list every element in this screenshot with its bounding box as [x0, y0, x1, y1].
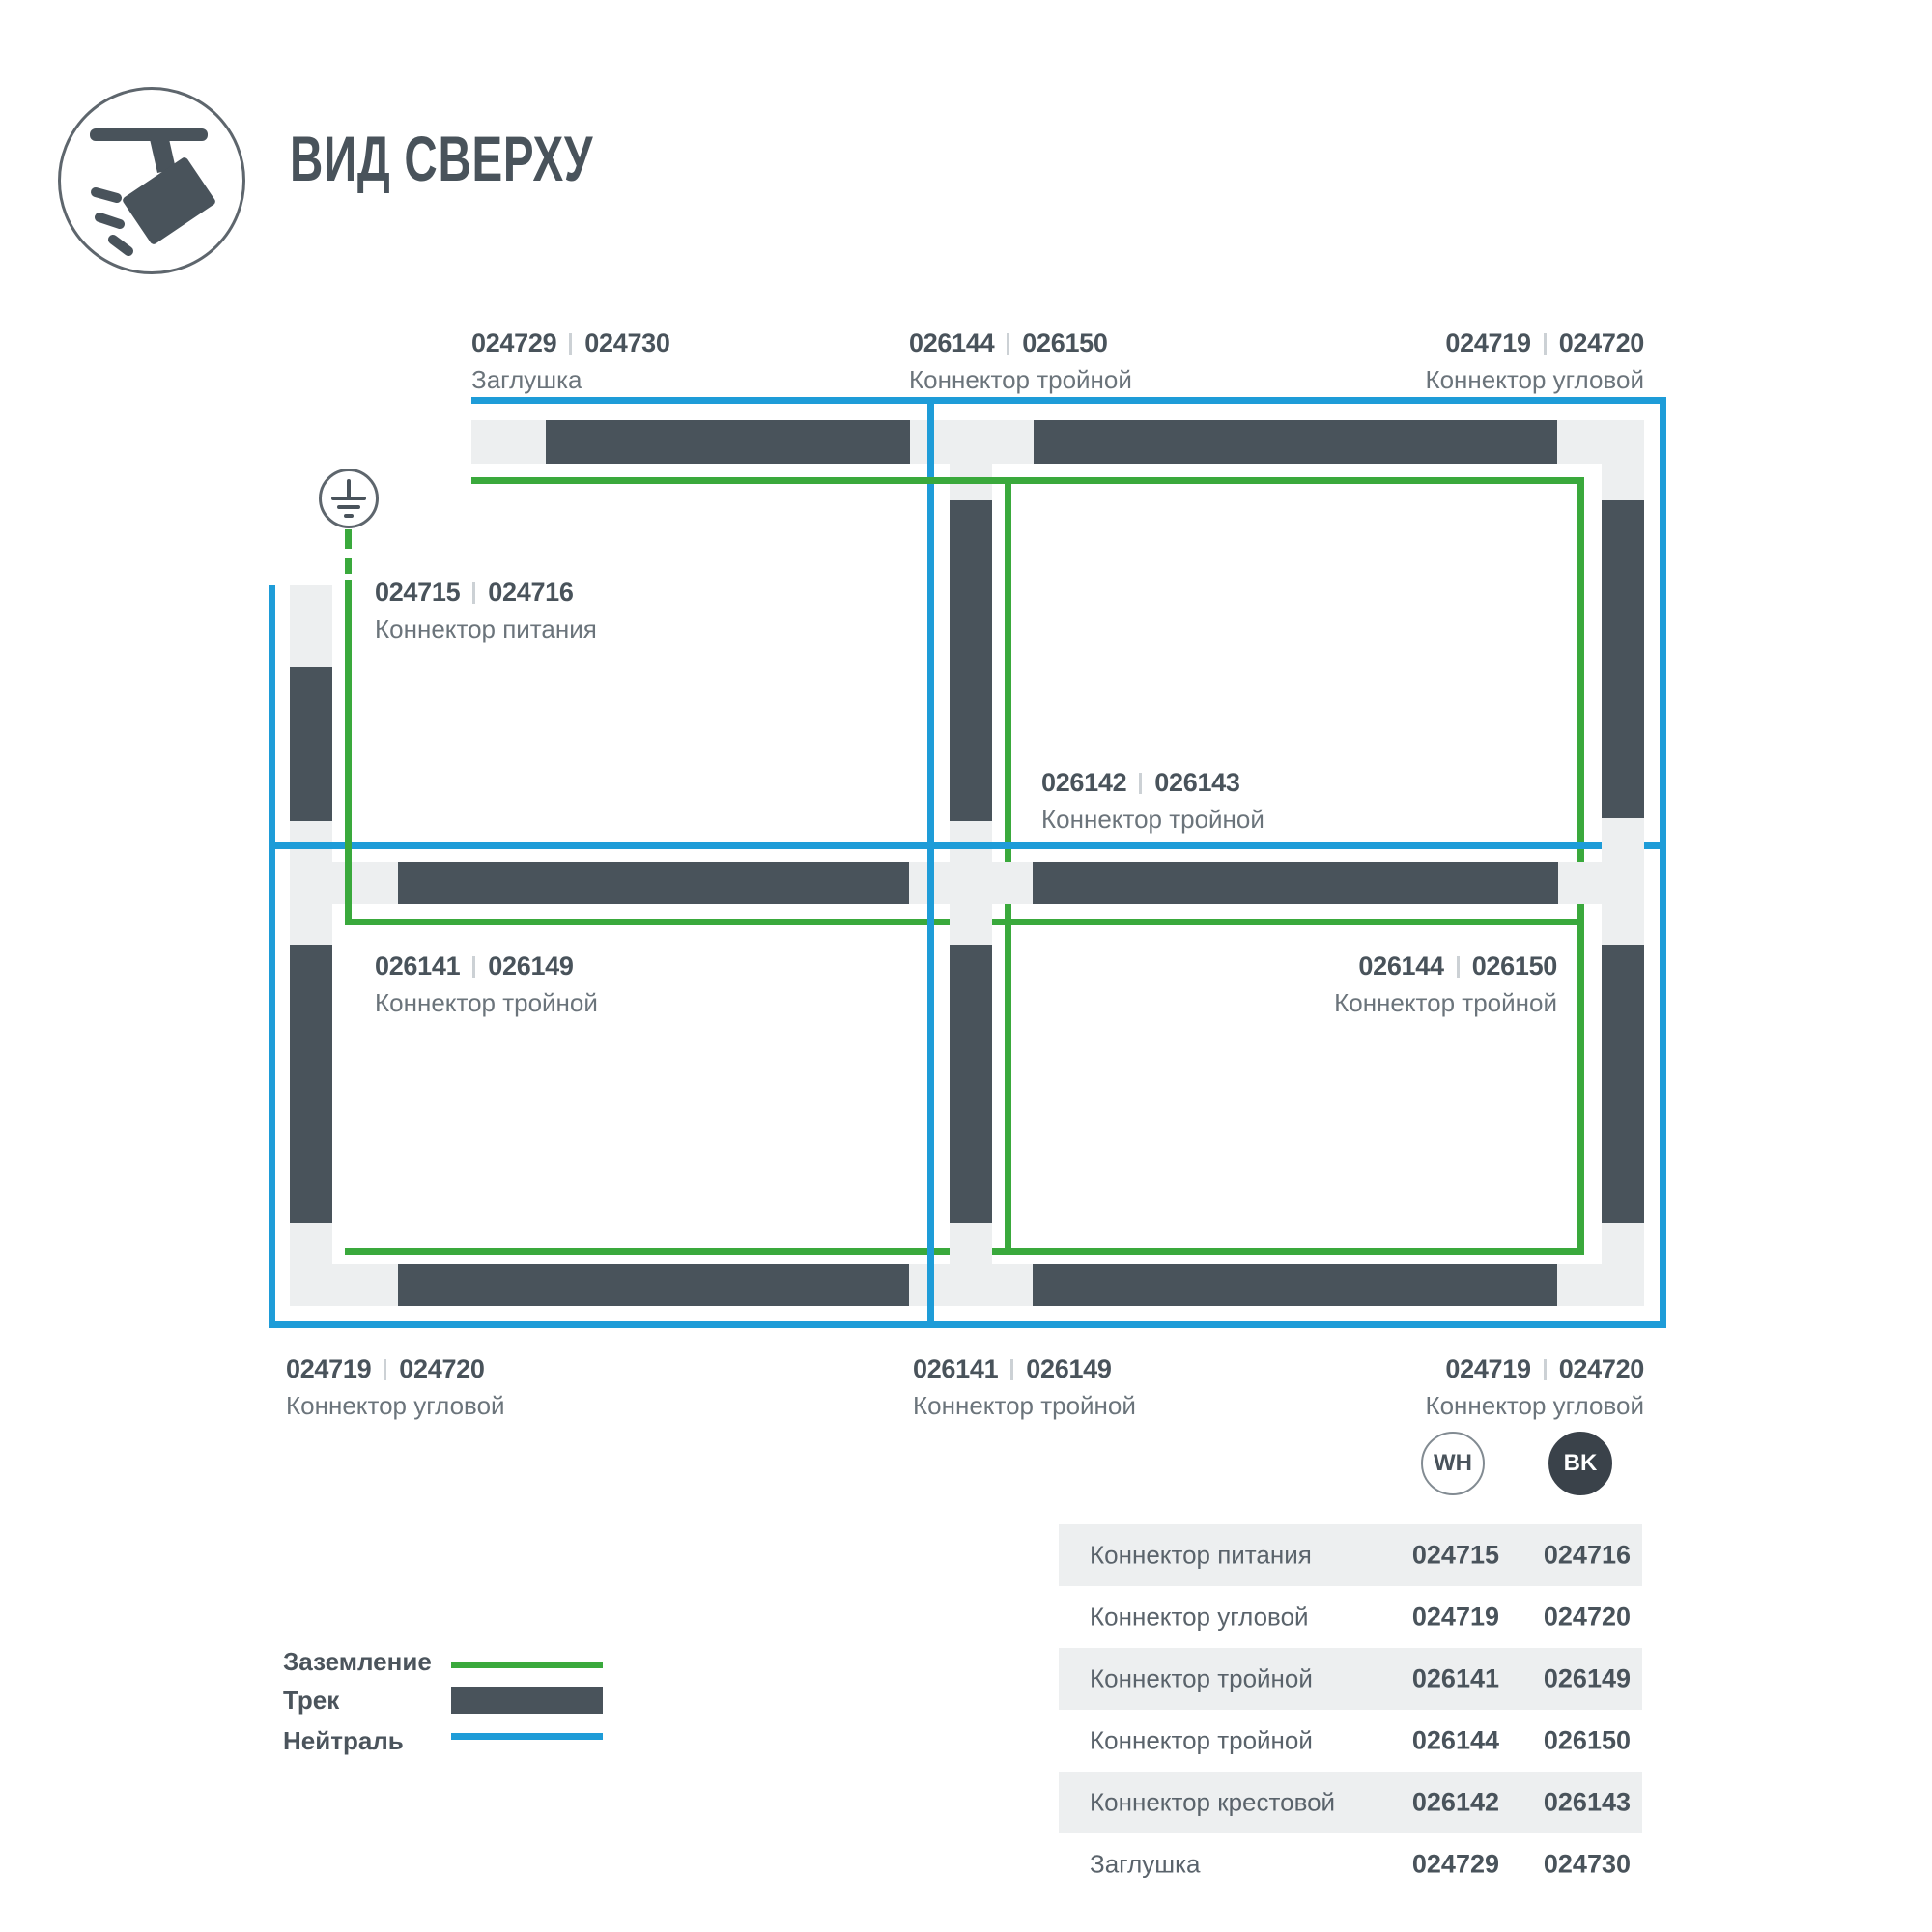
- track-segment: [1602, 945, 1644, 1223]
- code-bk: 026149: [488, 952, 573, 981]
- track-segment: [1034, 420, 1557, 464]
- ground-line-feed: [345, 580, 352, 925]
- code-bk: 026150: [1022, 328, 1107, 358]
- divider: [569, 333, 572, 355]
- part-name: Коннектор тройной: [913, 1391, 1136, 1421]
- track-segment: [950, 500, 992, 821]
- part-codes: 024715024716: [375, 578, 597, 608]
- divider: [1139, 773, 1142, 794]
- code-wh: 024719: [1445, 328, 1530, 358]
- ground-line-top: [471, 477, 1584, 484]
- code-bk: 024730: [584, 328, 669, 358]
- code-wh: 024719: [1445, 1354, 1530, 1384]
- divider: [472, 956, 475, 978]
- part-codes: 026144026150: [1334, 952, 1557, 981]
- code-bk: 026150: [1472, 952, 1557, 981]
- part-label-power-connector: 024715024716 Коннектор питания: [375, 578, 597, 644]
- code-bk: 024720: [399, 1354, 484, 1384]
- track-segment: [398, 862, 909, 904]
- divider: [1544, 1359, 1547, 1380]
- legend-swatch-ground: [451, 1662, 603, 1668]
- neutral-line-right: [1660, 397, 1666, 1328]
- divider: [472, 582, 475, 604]
- table-row: Коннектор питания 024715 024716: [1059, 1524, 1642, 1586]
- code-wh: 024715: [1412, 1541, 1499, 1571]
- part-label-t-connector-right: 026144026150 Коннектор тройной: [1334, 952, 1557, 1018]
- code-wh: 026144: [1412, 1726, 1499, 1756]
- part-label-t-connector-left: 026141026149 Коннектор тройной: [375, 952, 598, 1018]
- track-segment: [1602, 500, 1644, 818]
- code-bk: 026150: [1544, 1726, 1631, 1756]
- legend-label-neutral: Нейтраль: [283, 1726, 404, 1756]
- code-bk: 024716: [1544, 1541, 1631, 1571]
- part-name: Коннектор крестовой: [1090, 1788, 1335, 1818]
- code-bk: 026149: [1026, 1354, 1111, 1384]
- divider: [1457, 956, 1460, 978]
- part-codes: 024729024730: [471, 328, 670, 358]
- track-segment: [1033, 1264, 1557, 1306]
- table-row: Коннектор крестовой 026142 026143: [1059, 1772, 1642, 1833]
- code-bk: 026149: [1544, 1664, 1631, 1694]
- code-wh: 026141: [375, 952, 460, 981]
- parts-table: Коннектор питания 024715 024716 Коннекто…: [1059, 1524, 1642, 1895]
- part-label-cross-connector: 026142026143 Коннектор тройной: [1041, 768, 1264, 835]
- divider: [1010, 1359, 1013, 1380]
- legend-label-track: Трек: [283, 1686, 339, 1716]
- spotlight-icon: [61, 90, 242, 271]
- track-segment: [1033, 862, 1558, 904]
- code-wh: 026144: [1358, 952, 1443, 981]
- colorway-black-badge: BK: [1548, 1432, 1612, 1495]
- code-bk: 024730: [1544, 1850, 1631, 1880]
- ground-line-dash-2: [345, 558, 352, 574]
- code-bk: 024716: [488, 578, 573, 608]
- part-name: Коннектор угловой: [1090, 1603, 1309, 1633]
- page: ВИД СВЕРХУ: [0, 0, 1932, 1932]
- table-row: Заглушка 024729 024730: [1059, 1833, 1642, 1895]
- part-codes: 026141026149: [375, 952, 598, 981]
- part-label-endcap-top: 024729024730 Заглушка: [471, 328, 670, 395]
- colorway-white-badge: WH: [1421, 1432, 1485, 1495]
- part-codes: 024719024720: [1425, 1354, 1644, 1384]
- part-name: Коннектор тройной: [1334, 988, 1557, 1018]
- code-bk: 024720: [1559, 328, 1644, 358]
- part-name: Коннектор угловой: [1425, 365, 1644, 395]
- part-name: Коннектор тройной: [375, 988, 598, 1018]
- divider: [384, 1359, 386, 1380]
- part-name: Коннектор угловой: [286, 1391, 505, 1421]
- neutral-line-center: [927, 397, 934, 1328]
- code-wh: 024719: [1412, 1603, 1499, 1633]
- track-segment: [398, 1264, 909, 1306]
- part-name: Заглушка: [1090, 1850, 1201, 1880]
- neutral-line-bottom: [269, 1321, 1666, 1328]
- code-bk: 024720: [1559, 1354, 1644, 1384]
- part-label-corner-bottom-right: 024719024720 Коннектор угловой: [1425, 1354, 1644, 1421]
- part-name: Коннектор тройной: [909, 365, 1132, 395]
- earth-ground-icon: [319, 469, 379, 528]
- ground-line-dash-1: [345, 529, 352, 549]
- page-title: ВИД СВЕРХУ: [290, 122, 593, 195]
- legend-label-ground: Заземление: [283, 1647, 432, 1677]
- part-name: Коннектор тройной: [1041, 805, 1264, 835]
- legend-swatch-neutral: [451, 1733, 603, 1740]
- part-label-t-connector-top: 026144026150 Коннектор тройной: [909, 328, 1132, 395]
- code-wh: 026142: [1041, 768, 1126, 798]
- part-name: Заглушка: [471, 365, 670, 395]
- table-row: Коннектор угловой 024719 024720: [1059, 1586, 1642, 1648]
- code-wh: 024729: [1412, 1850, 1499, 1880]
- part-label-corner-top-right: 024719024720 Коннектор угловой: [1425, 328, 1644, 395]
- code-wh: 026144: [909, 328, 994, 358]
- code-bk: 024720: [1544, 1603, 1631, 1633]
- code-wh: 026142: [1412, 1788, 1499, 1818]
- code-wh: 024719: [286, 1354, 371, 1384]
- code-wh: 026141: [1412, 1664, 1499, 1694]
- code-wh: 024715: [375, 578, 460, 608]
- legend-swatch-track: [451, 1687, 603, 1714]
- part-codes: 026141026149: [913, 1354, 1136, 1384]
- neutral-line-middle: [269, 842, 1602, 849]
- part-codes: 024719024720: [1425, 328, 1644, 358]
- track-segment: [290, 667, 332, 821]
- table-row: Коннектор тройной 026141 026149: [1059, 1648, 1642, 1710]
- part-name: Коннектор питания: [375, 614, 597, 644]
- divider: [1007, 333, 1009, 355]
- code-bk: 026143: [1154, 768, 1239, 798]
- part-label-t-connector-bottom: 026141026149 Коннектор тройной: [913, 1354, 1136, 1421]
- track-segment: [290, 945, 332, 1223]
- code-bk: 026143: [1544, 1788, 1631, 1818]
- neutral-line-left: [269, 585, 275, 1328]
- part-codes: 026144026150: [909, 328, 1132, 358]
- part-name: Коннектор питания: [1090, 1541, 1312, 1571]
- code-wh: 026141: [913, 1354, 998, 1384]
- track-segment: [546, 420, 910, 464]
- part-codes: 026142026143: [1041, 768, 1264, 798]
- track-light-icon: [58, 87, 245, 274]
- code-wh: 024729: [471, 328, 556, 358]
- part-name: Коннектор тройной: [1090, 1726, 1313, 1756]
- divider: [1544, 333, 1547, 355]
- part-codes: 024719024720: [286, 1354, 505, 1384]
- table-row: Коннектор тройной 026144 026150: [1059, 1710, 1642, 1772]
- part-name: Коннектор тройной: [1090, 1664, 1313, 1694]
- track-segment: [950, 945, 992, 1223]
- part-label-corner-bottom-left: 024719024720 Коннектор угловой: [286, 1354, 505, 1421]
- neutral-line-top: [471, 397, 1666, 404]
- part-name: Коннектор угловой: [1425, 1391, 1644, 1421]
